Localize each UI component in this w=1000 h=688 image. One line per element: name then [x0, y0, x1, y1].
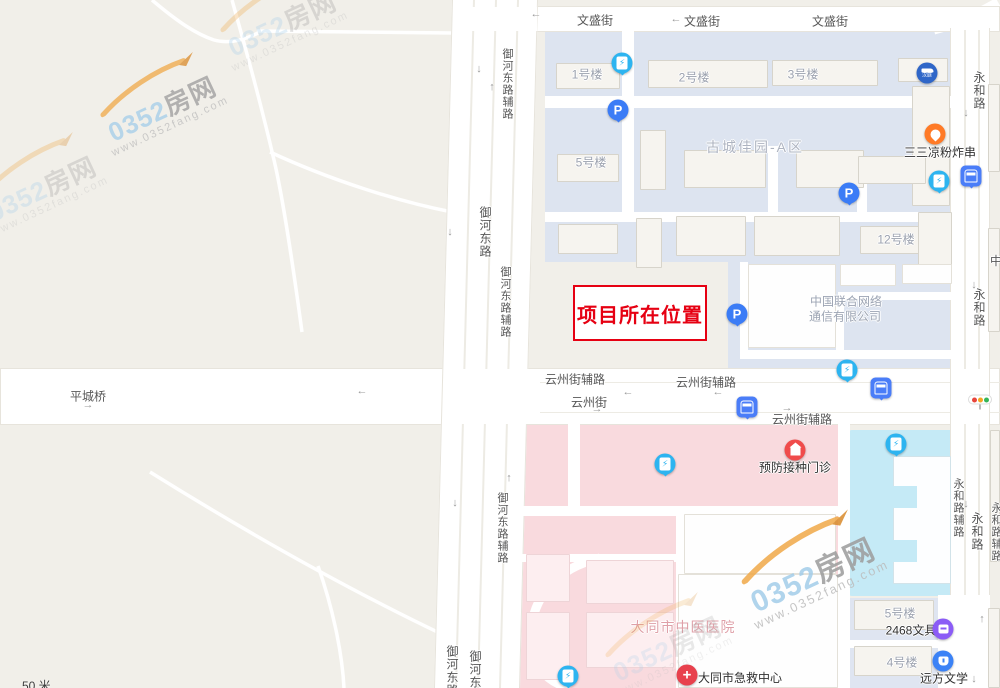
arrow-up-icon: ↑	[489, 81, 495, 93]
arrow-down-icon: ↓	[963, 498, 969, 510]
bus-stop-icon[interactable]	[871, 378, 892, 399]
poi-label-emergency[interactable]: 大同市急救中心	[698, 669, 782, 686]
road-label-yonghe-aux: 永和路辅路	[988, 502, 1000, 562]
road-label-wensheng: 文盛街	[684, 13, 720, 30]
building	[840, 264, 896, 286]
building	[676, 216, 746, 256]
parking-icon[interactable]: P	[727, 304, 748, 325]
building-label-1: 1号楼	[572, 66, 603, 83]
bus-stop-icon[interactable]	[737, 397, 758, 418]
charging-station-icon[interactable]: ⚡	[837, 360, 858, 381]
building	[640, 130, 666, 190]
building-label-12: 12号楼	[877, 231, 914, 248]
road-label-yuhe: 御河东路	[477, 206, 494, 258]
arrow-up-icon: ↑	[979, 613, 985, 625]
highlight-box: 项目所在位置	[573, 285, 707, 341]
arrow-down-icon: ↓	[452, 497, 458, 509]
arrow-right-icon: →	[592, 403, 603, 415]
road-label-yonghe: 永和路	[971, 71, 988, 110]
building-label-5-south: 5号楼	[885, 605, 916, 622]
road-label-yunzhou-aux: 云州街辅路	[545, 371, 605, 388]
building	[893, 456, 951, 584]
highlight-label: 项目所在位置	[577, 299, 703, 328]
road-yonghe	[950, 28, 990, 688]
building-label-4-south: 4号楼	[887, 654, 918, 671]
arrow-left-icon: ←	[623, 386, 634, 398]
hotel-hanting-icon[interactable]: 汉庭	[917, 63, 938, 84]
road-label-yuhe: 御河东路	[467, 650, 484, 688]
parking-glyph: P	[845, 186, 854, 201]
arrow-left-icon: ←	[713, 386, 724, 398]
road-yuhe	[434, 0, 538, 688]
charging-station-icon[interactable]: ⚡	[612, 53, 633, 74]
road-label-yunzhou-aux: 云州街辅路	[676, 374, 736, 391]
arrow-down-icon: ↓	[963, 107, 969, 119]
arrow-down-icon: ↓	[971, 673, 977, 685]
road-label-wensheng: 文盛街	[577, 12, 613, 29]
road-label-wensheng: 文盛街	[812, 13, 848, 30]
road-label-partial: 中	[990, 252, 1000, 269]
building	[526, 554, 570, 602]
building	[988, 608, 1000, 688]
road-label-yuhe-aux: 御河东路辅路	[499, 48, 515, 120]
arrow-right-icon: →	[782, 402, 793, 414]
watermark: 0352房网 www.0352fang.com	[87, 46, 230, 159]
arrow-left-icon: ←	[671, 13, 682, 25]
arrow-down-icon: ↓	[447, 226, 453, 238]
charging-station-icon[interactable]: ⚡	[886, 434, 907, 455]
charging-station-icon[interactable]: ⚡	[655, 454, 676, 475]
food-icon[interactable]	[925, 124, 946, 145]
parking-icon[interactable]: P	[608, 100, 629, 121]
building	[558, 224, 618, 254]
road-label-yonghe: 永和路	[971, 288, 988, 327]
parking-glyph: P	[733, 307, 742, 322]
arrow-right-icon: →	[83, 399, 94, 411]
road-label-yuhe: 御河东路	[444, 645, 461, 688]
parking-glyph: P	[614, 103, 623, 118]
education-icon[interactable]	[933, 651, 954, 672]
map-canvas[interactable]: 文盛街 文盛街 文盛街 御河东路辅路 御河东路 御河东路辅路 御河东路辅路 御河…	[0, 0, 1000, 688]
building	[988, 228, 1000, 332]
charging-station-icon[interactable]: ⚡	[558, 666, 579, 687]
building	[796, 150, 864, 188]
arrow-left-icon: ←	[531, 8, 542, 20]
arrow-up-icon: ↑	[506, 472, 512, 484]
traffic-light-icon	[968, 395, 992, 410]
poi-label-stationery[interactable]: 2468文具	[886, 622, 937, 639]
bus-stop-icon[interactable]	[961, 166, 982, 187]
parking-icon[interactable]: P	[839, 183, 860, 204]
hospital-main-building	[684, 514, 836, 574]
road-label-yonghe: 永和路	[969, 512, 986, 551]
road-label-yuhe-aux: 御河东路辅路	[497, 266, 513, 338]
scale-bar: 50 米	[22, 677, 51, 688]
building	[988, 84, 1000, 172]
unicom-label-line2: 通信有限公司	[809, 310, 881, 325]
community-label: 古城佳园-A区	[706, 137, 804, 157]
clinic-icon[interactable]	[785, 440, 806, 461]
arrow-down-icon: ↓	[476, 63, 482, 75]
building-label-2: 2号楼	[679, 69, 710, 86]
arrow-down-icon: ↓	[971, 279, 977, 291]
building	[636, 218, 662, 268]
building	[754, 216, 840, 256]
stationery-icon[interactable]	[933, 619, 954, 640]
hospital-label[interactable]: 大同市中医医院	[631, 617, 736, 637]
watermark: 0352房网 www.0352fang.com	[0, 126, 111, 239]
unicom-label-line1: 中国联合网络	[810, 295, 882, 310]
watermark: 0352房网 www.0352fang.com	[207, 0, 350, 74]
building-label-3: 3号楼	[788, 66, 819, 83]
arrow-left-icon: ←	[357, 385, 368, 397]
building	[586, 560, 674, 604]
emergency-cross-icon[interactable]: +	[677, 665, 698, 686]
building	[918, 212, 952, 270]
charging-station-icon[interactable]: ⚡	[929, 171, 950, 192]
poi-label-food[interactable]: 三三凉粉炸串	[904, 144, 976, 161]
road-label-yuhe-aux: 御河东路辅路	[494, 492, 510, 564]
building	[902, 264, 952, 284]
building-label-5: 5号楼	[576, 154, 607, 171]
